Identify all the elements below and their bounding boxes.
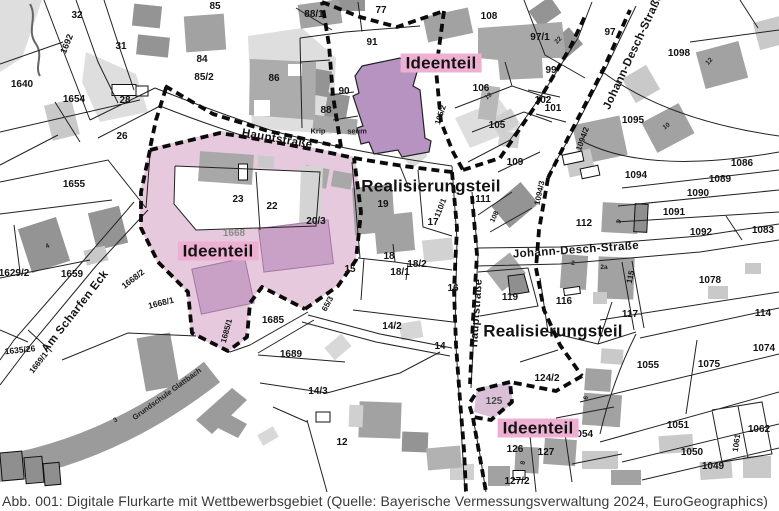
parcel-label-1668: 1668 bbox=[223, 229, 245, 239]
parcel-label-1095: 1095 bbox=[622, 116, 644, 126]
parcel-label-126: 126 bbox=[507, 445, 524, 455]
parcel-label-1640: 1640 bbox=[11, 80, 33, 90]
parcel-label-115: 115 bbox=[626, 270, 637, 284]
parcel-label-65-3: 65/3 bbox=[321, 295, 335, 313]
street-label-hauptstraße: Hauptstraße bbox=[241, 128, 313, 152]
parcel-label-77: 77 bbox=[375, 6, 386, 16]
parcel-label-97-1: 97/1 bbox=[530, 33, 549, 43]
parcel-label-17: 17 bbox=[427, 218, 438, 228]
parcel-label-1074: 1074 bbox=[753, 344, 775, 354]
house-number-6: 6 bbox=[583, 395, 590, 400]
parcel-label-22: 22 bbox=[266, 202, 277, 212]
parcel-label-1092: 1092 bbox=[690, 228, 712, 238]
parcel-label-14-3: 14/3 bbox=[308, 387, 327, 397]
parcel-label-1629-2: 1629/2 bbox=[0, 269, 29, 279]
house-number-2a: 2a bbox=[600, 265, 607, 272]
parcel-label-117: 117 bbox=[622, 310, 638, 320]
street-label-johann-desch-straße: Johann-Desch-Straße bbox=[513, 241, 640, 261]
parcel-label-1090: 1090 bbox=[687, 189, 709, 199]
house-number-2: 2 bbox=[571, 261, 575, 268]
parcel-label-111: 111 bbox=[475, 195, 491, 205]
area-label-ideenteil: Ideenteil bbox=[401, 54, 482, 73]
parcel-label-116: 116 bbox=[556, 297, 572, 307]
parcel-label-91: 91 bbox=[366, 38, 377, 48]
parcel-label-124-2: 124/2 bbox=[534, 374, 559, 384]
parcel-label-1668-1: 1668/1 bbox=[147, 296, 174, 311]
parcel-label-90: 90 bbox=[338, 87, 349, 97]
poi-label-krip: Krip bbox=[311, 127, 326, 135]
area-label-realisierungsteil: Realisierungsteil bbox=[483, 323, 622, 340]
parcel-label-1669-1: 1669/1 bbox=[28, 351, 49, 375]
house-number-19: 19 bbox=[484, 92, 494, 102]
area-label-realisierungsteil: Realisierungsteil bbox=[361, 178, 500, 195]
parcel-label-1685-1: 1685/1 bbox=[220, 318, 234, 344]
parcel-label-108: 108 bbox=[481, 12, 498, 22]
parcel-label-1668-2: 1668/2 bbox=[120, 268, 146, 291]
parcel-label-1689: 1689 bbox=[280, 350, 302, 360]
map-labels-layer: 3231164016542826858485/28688/17791908810… bbox=[0, 0, 779, 492]
house-number-10: 10 bbox=[662, 122, 672, 131]
area-label-ideenteil: Ideenteil bbox=[498, 419, 579, 438]
parcel-label-1094-3: 1094/3 bbox=[534, 180, 547, 206]
parcel-label-125: 125 bbox=[486, 397, 503, 407]
parcel-label-1094-2: 1094/2 bbox=[575, 126, 591, 152]
parcel-label-28: 28 bbox=[119, 96, 130, 106]
parcel-label-1086: 1086 bbox=[731, 159, 753, 169]
parcel-label-20-3: 20/3 bbox=[306, 217, 325, 227]
street-label-johann-desch-straße: Johann-Desch-Straße bbox=[602, 0, 666, 112]
house-number-9: 9 bbox=[616, 219, 623, 225]
parcel-label-1655: 1655 bbox=[63, 180, 85, 190]
parcel-label-12: 12 bbox=[336, 438, 347, 448]
house-number-22: 22 bbox=[554, 36, 564, 46]
parcel-label-1659: 1659 bbox=[61, 270, 83, 280]
poi-label-seum: seum bbox=[347, 127, 367, 135]
figure-caption: Abb. 001: Digitale Flurkarte mit Wettbew… bbox=[2, 493, 768, 509]
parcel-label-1055: 1055 bbox=[637, 361, 659, 371]
parcel-label-14-2: 14/2 bbox=[382, 322, 401, 332]
parcel-label-99: 99 bbox=[545, 66, 556, 76]
parcel-label-18: 18 bbox=[383, 252, 394, 262]
parcel-label-127: 127 bbox=[538, 448, 555, 458]
parcel-label-119: 119 bbox=[502, 293, 518, 303]
house-number-8: 8 bbox=[520, 460, 527, 465]
parcel-label-101: 101 bbox=[545, 104, 562, 114]
parcel-label-84: 84 bbox=[196, 55, 207, 65]
parcel-label-110-1: 110/1 bbox=[434, 197, 449, 218]
house-number-4: 4 bbox=[45, 243, 51, 250]
parcel-label-112: 112 bbox=[576, 219, 592, 229]
parcel-label-18-1: 18/1 bbox=[390, 268, 409, 278]
parcel-label-105-2: 105/2 bbox=[434, 104, 448, 126]
parcel-label-105: 105 bbox=[489, 121, 506, 131]
parcel-label-1685: 1685 bbox=[262, 316, 284, 326]
parcel-label-1089: 1089 bbox=[709, 175, 731, 185]
parcel-label-15: 15 bbox=[344, 265, 355, 275]
parcel-label-1692: 1692 bbox=[59, 33, 75, 55]
parcel-label-1050: 1050 bbox=[681, 448, 703, 458]
parcel-label-114: 114 bbox=[755, 309, 771, 319]
parcel-label-26: 26 bbox=[116, 132, 127, 142]
parcel-label-1091: 1091 bbox=[663, 208, 685, 218]
street-label-am-scharfen-eck: Am Scharfen Eck bbox=[40, 269, 111, 355]
parcel-label-1075: 1075 bbox=[698, 360, 720, 370]
parcel-label-109: 109 bbox=[507, 158, 524, 168]
parcel-label-1635-26: 1635/26 bbox=[4, 344, 35, 356]
parcel-label-32: 32 bbox=[71, 11, 82, 21]
parcel-label-18-2: 18/2 bbox=[407, 260, 426, 270]
poi-label-grundschule-glattbach: Grundschule Glattbach bbox=[131, 367, 203, 422]
area-label-ideenteil: Ideenteil bbox=[178, 242, 259, 261]
parcel-label-1062: 1062 bbox=[748, 425, 770, 435]
parcel-label-127-2: 127/2 bbox=[504, 477, 529, 487]
parcel-label-1083: 1083 bbox=[752, 226, 774, 236]
parcel-label-1078: 1078 bbox=[699, 276, 721, 286]
flurkarte-figure: 3231164016542826858485/28688/17791908810… bbox=[0, 0, 779, 511]
parcel-label-31: 31 bbox=[115, 42, 126, 52]
parcel-label-85: 85 bbox=[209, 2, 220, 12]
house-number-3: 3 bbox=[113, 417, 120, 424]
parcel-label-14: 14 bbox=[434, 342, 445, 352]
parcel-label-23: 23 bbox=[232, 195, 243, 205]
parcel-label-108: 108 bbox=[489, 210, 500, 224]
parcel-label-1094: 1094 bbox=[625, 171, 647, 181]
parcel-label-86: 86 bbox=[268, 74, 279, 84]
parcel-label-1654: 1654 bbox=[63, 95, 85, 105]
parcel-label-1051: 1051 bbox=[667, 421, 689, 431]
parcel-label-1098: 1098 bbox=[668, 49, 690, 59]
parcel-label-88: 88 bbox=[320, 106, 331, 116]
parcel-label-85-2: 85/2 bbox=[194, 73, 213, 83]
parcel-label-88-1: 88/1 bbox=[304, 10, 323, 20]
parcel-label-1061: 1061 bbox=[732, 434, 742, 453]
parcel-label-19: 19 bbox=[377, 200, 388, 210]
parcel-label-16: 16 bbox=[447, 284, 458, 294]
parcel-label-97: 97 bbox=[604, 28, 615, 38]
parcel-label-1049: 1049 bbox=[702, 462, 724, 472]
house-number-12: 12 bbox=[705, 57, 715, 67]
